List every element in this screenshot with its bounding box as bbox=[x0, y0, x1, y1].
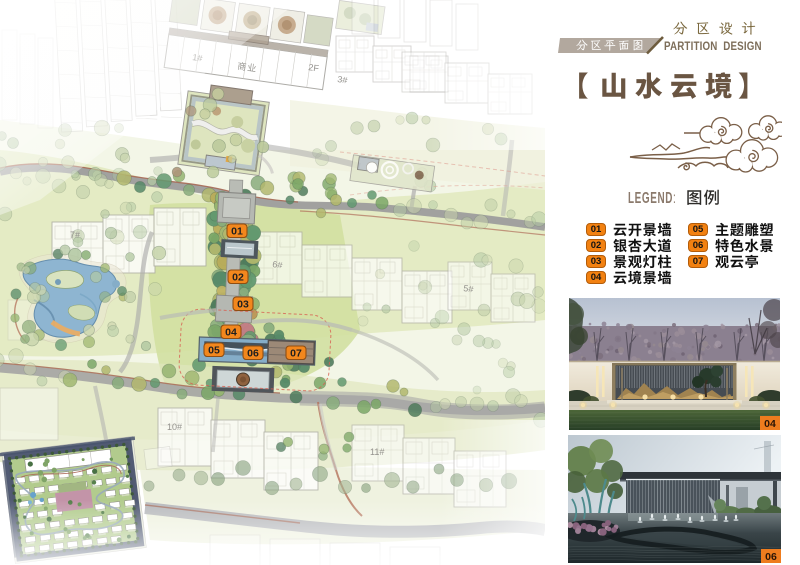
svg-text:06: 06 bbox=[765, 551, 777, 563]
svg-text:04: 04 bbox=[764, 418, 776, 430]
